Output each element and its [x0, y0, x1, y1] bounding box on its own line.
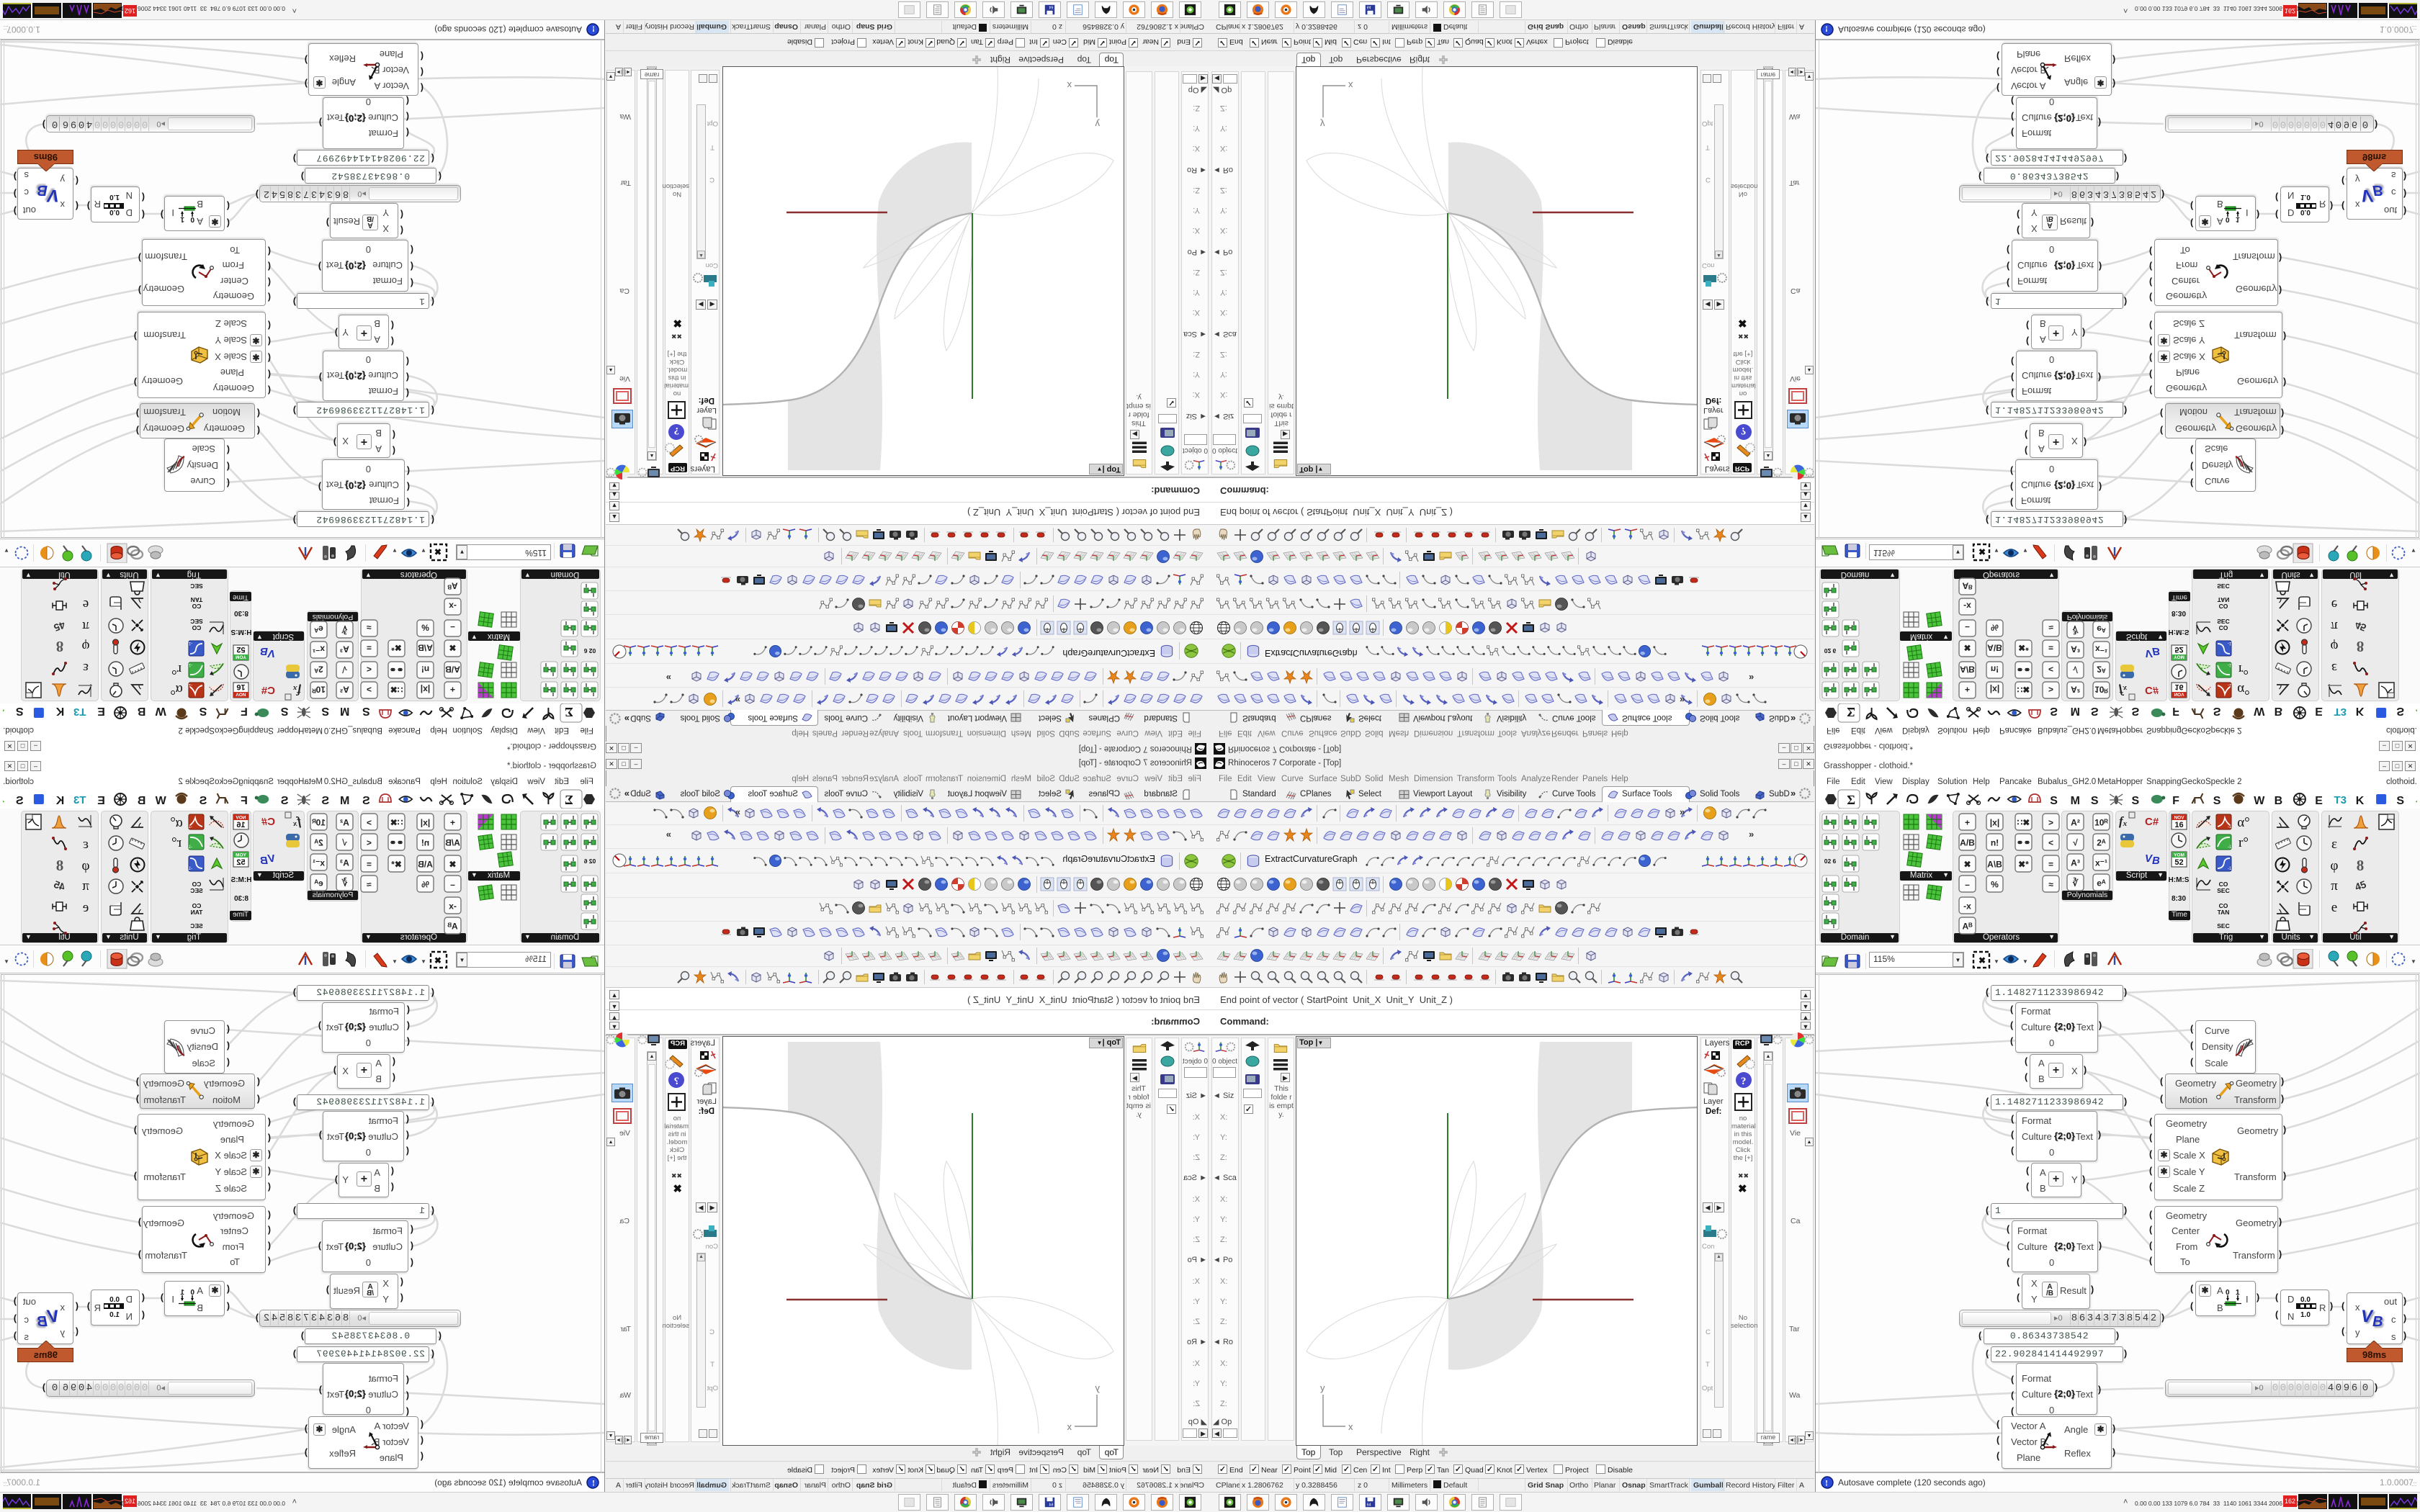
svg-text:F: F — [241, 705, 248, 717]
svg-text:K: K — [2356, 795, 2365, 807]
svg-text:45: 45 — [2353, 878, 2367, 893]
svg-text:TAN: TAN — [2218, 596, 2230, 603]
svg-text:VB: VB — [2145, 852, 2160, 867]
svg-text:n!: n! — [1991, 838, 1999, 848]
svg-text:SEC: SEC — [2217, 922, 2229, 930]
svg-text:16: 16 — [2174, 683, 2183, 691]
svg-text:eᴬ: eᴬ — [314, 624, 323, 634]
svg-text:⚭⚭: ⚭⚭ — [389, 665, 403, 675]
svg-text:✖: ✖ — [434, 955, 442, 966]
svg-text:-1: -1 — [2228, 662, 2232, 667]
svg-text:8: 8 — [2357, 857, 2365, 874]
svg-text:S: S — [2396, 795, 2404, 807]
svg-text:A³: A³ — [340, 644, 349, 654]
svg-text:M: M — [2071, 705, 2080, 717]
svg-text:✖*: ✖* — [2018, 860, 2029, 870]
svg-text:8: 8 — [56, 857, 64, 874]
svg-text:<: < — [2048, 838, 2053, 848]
svg-text:2ᴬ: 2ᴬ — [2097, 838, 2106, 848]
svg-text:S: S — [199, 795, 207, 807]
svg-text:45: 45 — [2353, 619, 2367, 634]
svg-text:x: x — [1067, 1421, 1072, 1432]
svg-text:E: E — [2315, 795, 2323, 807]
svg-text:▼: ▼ — [4, 958, 9, 965]
svg-text:▼: ▼ — [392, 958, 398, 965]
svg-text:SEC: SEC — [2217, 887, 2229, 894]
svg-text:φ: φ — [2331, 639, 2339, 654]
svg-text:▼: ▼ — [4, 547, 9, 554]
svg-text:E: E — [97, 705, 105, 717]
svg-text:T3: T3 — [73, 794, 86, 806]
svg-text:B: B — [2275, 795, 2283, 807]
svg-text:e: e — [83, 597, 89, 612]
svg-text:YOM: YOM — [236, 654, 246, 660]
svg-text:B: B — [138, 795, 146, 807]
svg-text:SEC: SEC — [190, 582, 202, 590]
svg-text:64: 64 — [1049, 5, 1053, 9]
svg-text:H:M:S: H:M:S — [2169, 876, 2190, 884]
svg-text:A/B: A/B — [1960, 665, 1975, 675]
svg-text:H:M:S: H:M:S — [230, 628, 251, 636]
svg-text:%: % — [421, 880, 429, 890]
svg-text:1.0: 1.0 — [109, 193, 120, 201]
svg-text:+: + — [1965, 685, 1970, 695]
svg-text:S: S — [2050, 795, 2058, 807]
svg-text:α°: α° — [2237, 682, 2250, 697]
svg-text:K: K — [55, 795, 64, 807]
svg-text:1.0: 1.0 — [2300, 193, 2311, 201]
svg-text:Σ: Σ — [565, 793, 573, 807]
svg-text:C#: C# — [2145, 684, 2159, 696]
svg-text:S: S — [2132, 705, 2140, 717]
svg-text:B: B — [138, 705, 146, 717]
svg-text:<: < — [367, 838, 372, 848]
svg-text:52: 52 — [236, 645, 245, 654]
svg-text:✖: ✖ — [449, 643, 456, 653]
svg-text:45: 45 — [52, 878, 66, 893]
svg-text:8:30: 8:30 — [2172, 895, 2186, 903]
svg-text:≈: ≈ — [2048, 880, 2053, 890]
svg-text:A\B: A\B — [1987, 643, 2002, 653]
svg-text:∷✖: ∷✖ — [390, 818, 403, 828]
svg-text:∷✖: ∷✖ — [2017, 818, 2030, 828]
svg-text:YOM: YOM — [236, 853, 246, 858]
svg-text:VB: VB — [2145, 645, 2160, 660]
svg-text:W: W — [2254, 795, 2265, 807]
svg-text:|x|: |x| — [1990, 685, 1999, 695]
svg-text:0.0: 0.0 — [109, 208, 120, 216]
svg-text:x⁻¹: x⁻¹ — [2095, 644, 2107, 654]
svg-text:x⁻¹: x⁻¹ — [313, 644, 325, 654]
svg-text:x: x — [1067, 80, 1072, 91]
svg-text:eᴬ: eᴬ — [2097, 878, 2106, 888]
svg-text:%: % — [1991, 623, 1999, 633]
svg-text:A²: A² — [340, 685, 349, 695]
svg-text:✖: ✖ — [449, 860, 456, 870]
svg-text:!: ! — [1825, 24, 1828, 35]
svg-text:-x: -x — [1963, 601, 1971, 611]
svg-text:E: E — [2315, 705, 2323, 717]
svg-text:A\B: A\B — [418, 860, 433, 870]
svg-text:S: S — [2213, 705, 2221, 717]
svg-text:S: S — [16, 705, 24, 717]
svg-text:Aᴮ: Aᴮ — [1962, 581, 1973, 591]
svg-text:✖*: ✖* — [391, 643, 402, 653]
svg-text:eᴬ: eᴬ — [2097, 624, 2106, 634]
svg-text:VB: VB — [260, 852, 275, 867]
svg-text:∛: ∛ — [2073, 878, 2079, 888]
svg-text:r°: r° — [171, 835, 181, 850]
svg-text:SEC: SEC — [190, 922, 202, 930]
svg-text:fx: fx — [292, 814, 301, 828]
svg-text:SEC: SEC — [190, 887, 202, 894]
svg-text:NOV: NOV — [2174, 692, 2184, 697]
svg-text:<: < — [2048, 665, 2053, 675]
svg-text:?: ? — [1741, 1076, 1747, 1087]
svg-text:52: 52 — [236, 858, 245, 867]
svg-text:H:M:S: H:M:S — [2169, 628, 2190, 636]
svg-text:0.0: 0.0 — [2300, 208, 2311, 216]
svg-text:✖: ✖ — [1978, 546, 1986, 557]
svg-text:-x: -x — [449, 901, 457, 912]
svg-text:✖: ✖ — [1978, 955, 1986, 966]
svg-text:∛: ∛ — [341, 878, 347, 888]
svg-text:-1: -1 — [188, 662, 192, 667]
svg-text:CO: CO — [2219, 603, 2228, 610]
svg-text:45: 45 — [52, 619, 66, 634]
svg-text:▼: ▼ — [421, 958, 426, 965]
svg-text:8: 8 — [56, 638, 64, 655]
svg-text:-x: -x — [1963, 901, 1971, 912]
svg-text:A/B: A/B — [1960, 838, 1975, 848]
svg-text:|x|: |x| — [421, 818, 430, 828]
svg-text:CO: CO — [2219, 624, 2228, 631]
svg-text:φ: φ — [81, 858, 89, 873]
svg-text:+: + — [450, 818, 455, 828]
svg-text:y: y — [1095, 119, 1100, 130]
svg-text:-1: -1 — [188, 867, 192, 871]
svg-text:-1: -1 — [2228, 641, 2232, 645]
svg-text:02 6: 02 6 — [583, 647, 596, 654]
svg-text:10ᴿ: 10ᴿ — [2094, 818, 2108, 828]
svg-text:-1: -1 — [2228, 867, 2232, 871]
svg-text:e: e — [2331, 900, 2337, 915]
svg-text:φ: φ — [81, 639, 89, 654]
svg-text:C#: C# — [2145, 816, 2159, 828]
svg-text:!: ! — [592, 1478, 595, 1488]
svg-text:A³: A³ — [340, 858, 349, 868]
svg-text:CO: CO — [192, 624, 201, 631]
svg-text:VB: VB — [260, 645, 275, 660]
svg-text:64: 64 — [1049, 1503, 1053, 1507]
svg-text:-1: -1 — [188, 641, 192, 645]
svg-text:π: π — [2331, 878, 2338, 894]
svg-text:T3: T3 — [73, 706, 86, 718]
svg-text:!: ! — [1825, 1478, 1828, 1488]
svg-text:–: – — [1965, 623, 1970, 633]
svg-text:K: K — [2356, 705, 2365, 717]
svg-text:ε: ε — [2331, 837, 2337, 852]
svg-text:A²: A² — [2071, 685, 2080, 695]
svg-text:TAN: TAN — [2218, 909, 2230, 916]
svg-text:16: 16 — [2174, 821, 2183, 829]
svg-text:W: W — [2254, 705, 2265, 717]
svg-text:=: = — [367, 860, 372, 870]
svg-text:Aᴮ: Aᴮ — [447, 922, 458, 932]
svg-text:x: x — [1348, 1421, 1353, 1432]
svg-text:M: M — [340, 795, 349, 807]
svg-text:?: ? — [674, 1076, 680, 1087]
svg-text:Aᴮ: Aᴮ — [447, 581, 458, 591]
svg-text:–: – — [450, 880, 455, 890]
svg-text:>: > — [2048, 818, 2053, 828]
svg-text:r°: r° — [2238, 835, 2249, 850]
svg-text:x⁻¹: x⁻¹ — [2095, 858, 2107, 868]
svg-text:S: S — [2091, 795, 2099, 807]
svg-text:10ᴿ: 10ᴿ — [2094, 685, 2108, 695]
svg-text:|x|: |x| — [1990, 818, 1999, 828]
svg-text:C#: C# — [261, 816, 275, 828]
svg-text:52: 52 — [2174, 858, 2183, 867]
svg-text:TAN: TAN — [191, 909, 203, 916]
svg-text:8:30: 8:30 — [234, 609, 248, 617]
svg-text:-1: -1 — [2228, 683, 2232, 687]
svg-text:✖: ✖ — [1963, 643, 1971, 653]
svg-text:S: S — [362, 795, 370, 807]
svg-text:√: √ — [342, 838, 347, 848]
svg-text:1.0: 1.0 — [109, 1311, 120, 1319]
svg-text:=: = — [2048, 643, 2053, 653]
svg-text:A²: A² — [2071, 818, 2080, 828]
svg-text:NOV: NOV — [236, 816, 246, 821]
svg-text:K: K — [55, 705, 64, 717]
svg-text:x: x — [1348, 80, 1353, 91]
svg-text:A/B: A/B — [445, 838, 460, 848]
svg-text:∷✖: ∷✖ — [2017, 685, 2030, 695]
svg-text:α°: α° — [2237, 815, 2250, 830]
svg-text:A/B: A/B — [445, 665, 460, 675]
svg-text:▼: ▼ — [2411, 547, 2416, 554]
svg-text:2ᴬ: 2ᴬ — [314, 838, 323, 848]
svg-text:16: 16 — [236, 821, 245, 829]
svg-text:E: E — [97, 795, 105, 807]
svg-text:α°: α° — [170, 682, 183, 697]
svg-text:▼: ▼ — [2022, 547, 2028, 554]
svg-text:%: % — [1991, 880, 1999, 890]
svg-text:y: y — [1320, 119, 1325, 130]
svg-text:S: S — [16, 795, 24, 807]
svg-text:>: > — [367, 818, 372, 828]
svg-text:8: 8 — [2357, 638, 2365, 655]
svg-text:YOM: YOM — [2174, 654, 2184, 660]
svg-text:▼: ▼ — [1994, 958, 1999, 965]
svg-text:NOV: NOV — [236, 692, 246, 697]
svg-text:r°: r° — [2238, 662, 2249, 677]
svg-text:▼: ▼ — [2411, 958, 2416, 965]
svg-text:ε: ε — [83, 660, 89, 675]
svg-text:S: S — [2396, 705, 2404, 717]
svg-text:✖: ✖ — [1963, 860, 1971, 870]
svg-text:10ᴿ: 10ᴿ — [312, 685, 326, 695]
svg-text:√: √ — [2073, 665, 2078, 675]
svg-text:T3: T3 — [2334, 706, 2347, 718]
svg-text:S: S — [321, 705, 329, 717]
svg-text:T3: T3 — [2334, 794, 2347, 806]
svg-text:Σ: Σ — [1847, 705, 1855, 719]
svg-text:Aᴮ: Aᴮ — [1962, 922, 1973, 932]
svg-text:ε: ε — [83, 837, 89, 852]
svg-text:α°: α° — [170, 815, 183, 830]
svg-text:M: M — [340, 705, 349, 717]
svg-text:S: S — [2132, 795, 2140, 807]
svg-text:∛: ∛ — [341, 624, 347, 635]
svg-text:8:30: 8:30 — [234, 895, 248, 903]
svg-text:-1: -1 — [2228, 845, 2232, 850]
svg-text:<: < — [367, 665, 372, 675]
svg-text:1.0: 1.0 — [2300, 1311, 2311, 1319]
svg-text:fx: fx — [2119, 814, 2128, 828]
svg-text:n!: n! — [1991, 665, 1999, 675]
svg-text:TAN: TAN — [191, 596, 203, 603]
svg-text:2ᴬ: 2ᴬ — [314, 665, 323, 675]
svg-text:!: ! — [592, 24, 595, 35]
svg-text:YOM: YOM — [2174, 853, 2184, 858]
svg-text:S: S — [362, 705, 370, 717]
svg-text:?: ? — [1741, 425, 1747, 436]
svg-text:x⁻¹: x⁻¹ — [313, 858, 325, 868]
svg-text:02 6: 02 6 — [1824, 647, 1837, 654]
svg-text:?: ? — [674, 425, 680, 436]
svg-text:SEC: SEC — [190, 618, 202, 625]
svg-text:0.0: 0.0 — [109, 1296, 120, 1304]
svg-text:S: S — [2050, 705, 2058, 717]
svg-text:y: y — [1095, 1382, 1100, 1393]
svg-text:≈: ≈ — [2048, 623, 2053, 633]
svg-text:=: = — [367, 643, 372, 653]
svg-text:▼: ▼ — [392, 547, 398, 554]
svg-text:e: e — [2331, 597, 2337, 612]
svg-text:|x|: |x| — [421, 685, 430, 695]
svg-text:A²: A² — [340, 818, 349, 828]
svg-text:▼: ▼ — [421, 547, 426, 554]
svg-text:y: y — [1320, 1382, 1325, 1393]
svg-text:+: + — [1965, 818, 1970, 828]
svg-text:∛: ∛ — [2073, 624, 2079, 635]
svg-text:B: B — [2275, 705, 2283, 717]
svg-text:F: F — [2172, 795, 2179, 807]
svg-text:fx: fx — [292, 684, 301, 698]
svg-text:A\B: A\B — [418, 643, 433, 653]
svg-text:F: F — [2172, 705, 2179, 717]
svg-text:-1: -1 — [2228, 825, 2232, 829]
svg-text:r°: r° — [171, 662, 181, 677]
svg-text:%: % — [421, 623, 429, 633]
svg-text:–: – — [1965, 880, 1970, 890]
svg-text:+: + — [450, 685, 455, 695]
svg-text:A³: A³ — [2071, 858, 2080, 868]
svg-text:S: S — [281, 795, 289, 807]
svg-text:M: M — [2071, 795, 2080, 807]
svg-text:⚭⚭: ⚭⚭ — [389, 838, 403, 848]
svg-text:-1: -1 — [188, 845, 192, 850]
svg-text:S: S — [2091, 705, 2099, 717]
svg-text:0.0: 0.0 — [2300, 1296, 2311, 1304]
svg-text:F: F — [241, 795, 248, 807]
svg-text:SEC: SEC — [2217, 618, 2229, 625]
svg-text:>: > — [367, 685, 372, 695]
svg-text:64: 64 — [1367, 5, 1371, 9]
svg-text:S: S — [321, 795, 329, 807]
svg-text:▼: ▼ — [1994, 547, 1999, 554]
svg-text:∷✖: ∷✖ — [390, 685, 403, 695]
svg-text:Σ: Σ — [1847, 793, 1855, 807]
svg-text:⚭⚭: ⚭⚭ — [2016, 665, 2030, 675]
svg-text:✖: ✖ — [434, 546, 442, 557]
svg-text:8:30: 8:30 — [2172, 609, 2186, 617]
svg-text:A³: A³ — [2071, 644, 2080, 654]
svg-text:10ᴿ: 10ᴿ — [312, 818, 326, 828]
svg-text:-1: -1 — [188, 825, 192, 829]
svg-text:A\B: A\B — [1987, 860, 2002, 870]
svg-text:-x: -x — [449, 601, 457, 611]
svg-text:-1: -1 — [188, 683, 192, 687]
svg-text:π: π — [82, 618, 89, 634]
svg-text:–: – — [450, 623, 455, 633]
svg-text:n!: n! — [421, 665, 429, 675]
svg-text:=: = — [2048, 860, 2053, 870]
svg-text:52: 52 — [2174, 645, 2183, 654]
svg-text:π: π — [82, 878, 89, 894]
svg-text:H:M:S: H:M:S — [230, 876, 251, 884]
svg-text:16: 16 — [236, 683, 245, 691]
svg-text:W: W — [155, 705, 166, 717]
svg-text:02 6: 02 6 — [1824, 858, 1837, 865]
svg-text:▼: ▼ — [2022, 958, 2028, 965]
svg-text:fx: fx — [2119, 684, 2128, 698]
svg-text:02 6: 02 6 — [583, 858, 596, 865]
svg-text:Σ: Σ — [565, 705, 573, 719]
svg-text:NOV: NOV — [2174, 816, 2184, 821]
svg-text:φ: φ — [2331, 858, 2339, 873]
svg-text:eᴬ: eᴬ — [314, 878, 323, 888]
svg-text:≈: ≈ — [367, 623, 372, 633]
svg-text:SEC: SEC — [2217, 582, 2229, 590]
svg-text:W: W — [155, 795, 166, 807]
svg-text:√: √ — [2073, 838, 2078, 848]
svg-text:CO: CO — [192, 603, 201, 610]
svg-text:S: S — [199, 705, 207, 717]
svg-text:ε: ε — [2331, 660, 2337, 675]
svg-text:n!: n! — [421, 838, 429, 848]
svg-text:>: > — [2048, 685, 2053, 695]
svg-text:2ᴬ: 2ᴬ — [2097, 665, 2106, 675]
svg-text:≈: ≈ — [367, 880, 372, 890]
svg-text:e: e — [83, 900, 89, 915]
svg-text:S: S — [281, 705, 289, 717]
svg-text:√: √ — [342, 665, 347, 675]
svg-text:S: S — [2213, 795, 2221, 807]
svg-text:C#: C# — [261, 684, 275, 696]
svg-text:⚭⚭: ⚭⚭ — [2016, 838, 2030, 848]
svg-text:✖*: ✖* — [391, 860, 402, 870]
svg-text:64: 64 — [1367, 1503, 1371, 1507]
svg-text:✖*: ✖* — [2018, 643, 2029, 653]
svg-text:π: π — [2331, 618, 2338, 634]
